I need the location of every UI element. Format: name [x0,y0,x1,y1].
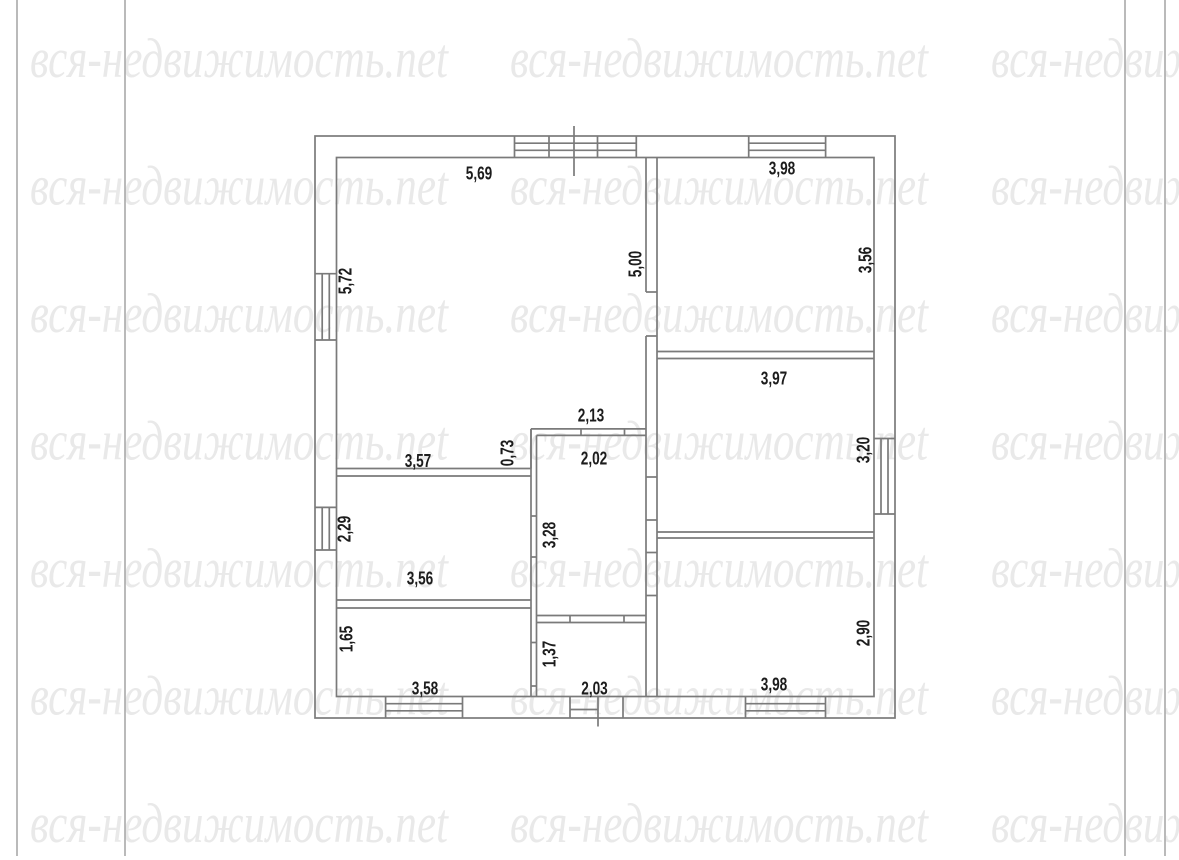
svg-text:вся-недвижимость.net: вся-недвижимость.net [510,538,929,600]
svg-text:вся-недвижимость.net: вся-недвижимость.net [30,411,449,473]
svg-text:вся-недвижимость.net: вся-недвижимость.net [991,283,1179,345]
svg-text:3,28: 3,28 [540,522,560,549]
svg-text:2,02: 2,02 [581,449,608,469]
svg-text:5,69: 5,69 [466,164,493,184]
svg-text:вся-недвижимость.net: вся-недвижимость.net [991,793,1179,855]
svg-text:2,03: 2,03 [581,679,608,699]
svg-text:5,72: 5,72 [336,268,356,295]
svg-text:вся-недвижимость.net: вся-недвижимость.net [991,156,1179,218]
svg-text:вся-недвижимость.net: вся-недвижимость.net [991,28,1179,90]
svg-text:1,37: 1,37 [540,641,560,668]
svg-text:вся-недвижимость.net: вся-недвижимость.net [991,666,1179,728]
svg-text:вся-недвижимость.net: вся-недвижимость.net [510,156,929,218]
svg-text:3,98: 3,98 [769,159,796,179]
svg-text:вся-недвижимость.net: вся-недвижимость.net [510,28,929,90]
svg-text:3,57: 3,57 [405,451,432,471]
svg-text:3,56: 3,56 [407,569,434,589]
svg-text:вся-недвижимость.net: вся-недвижимость.net [30,793,449,855]
svg-text:1,65: 1,65 [337,626,357,653]
svg-text:2,13: 2,13 [578,406,605,426]
svg-text:вся-недвижимость.net: вся-недвижимость.net [30,28,449,90]
svg-text:3,20: 3,20 [854,437,874,464]
svg-text:2,90: 2,90 [854,620,874,647]
svg-text:5,00: 5,00 [626,251,646,278]
svg-text:3,97: 3,97 [761,369,788,389]
svg-text:вся-недвижимость.net: вся-недвижимость.net [30,283,449,345]
svg-text:2,29: 2,29 [335,516,355,543]
svg-text:вся-недвижимость.net: вся-недвижимость.net [510,283,929,345]
svg-text:вся-недвижимость.net: вся-недвижимость.net [510,793,929,855]
svg-text:вся-недвижимость.net: вся-недвижимость.net [991,538,1179,600]
svg-text:3,58: 3,58 [412,679,439,699]
svg-text:3,56: 3,56 [856,247,876,274]
svg-text:3,98: 3,98 [761,675,788,695]
svg-text:0,73: 0,73 [498,440,518,467]
svg-text:вся-недвижимость.net: вся-недвижимость.net [30,156,449,218]
svg-text:вся-недвижимость.net: вся-недвижимость.net [30,538,449,600]
svg-text:вся-недвижимость.net: вся-недвижимость.net [991,411,1179,473]
